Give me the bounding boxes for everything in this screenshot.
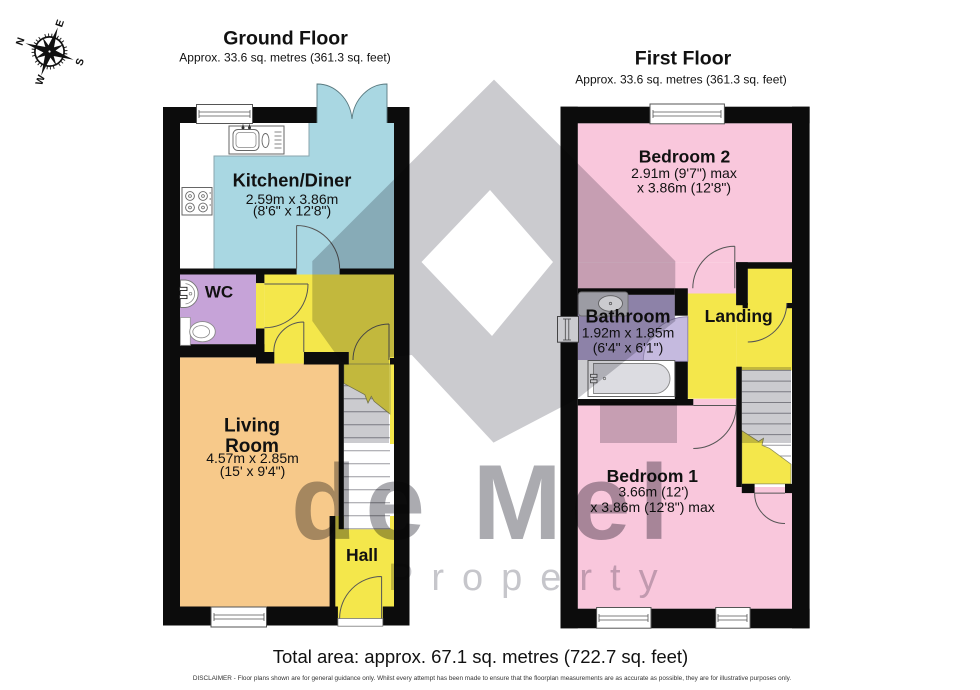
- svg-text:(8'6" x 12'8"): (8'6" x 12'8"): [253, 202, 331, 218]
- svg-text:Bedroom 2: Bedroom 2: [639, 147, 731, 167]
- svg-text:Kitchen/Diner: Kitchen/Diner: [233, 170, 352, 191]
- svg-text:x 3.86m (12'8"): x 3.86m (12'8"): [637, 180, 731, 196]
- svg-text:de Mel: de Mel: [291, 442, 678, 562]
- svg-text:Approx. 33.6 sq. metres (361.3: Approx. 33.6 sq. metres (361.3 sq. feet): [575, 73, 786, 87]
- svg-text:Ground Floor: Ground Floor: [223, 28, 348, 50]
- svg-text:WC: WC: [205, 283, 233, 302]
- svg-text:Approx. 33.6 sq. metres (361.3: Approx. 33.6 sq. metres (361.3 sq. feet): [179, 51, 390, 65]
- svg-text:Living: Living: [224, 416, 280, 437]
- svg-text:DISCLAIMER - Floor plans sho: DISCLAIMER - Floor plans shown are for g…: [193, 675, 792, 682]
- svg-text:Landing: Landing: [705, 306, 773, 326]
- svg-text:(15' x 9'4"): (15' x 9'4"): [220, 463, 286, 479]
- svg-text:Property: Property: [388, 557, 676, 599]
- svg-text:First Floor: First Floor: [635, 48, 732, 70]
- svg-text:Total area: approx. 67.1 sq. m: Total area: approx. 67.1 sq. metres (722…: [273, 646, 688, 667]
